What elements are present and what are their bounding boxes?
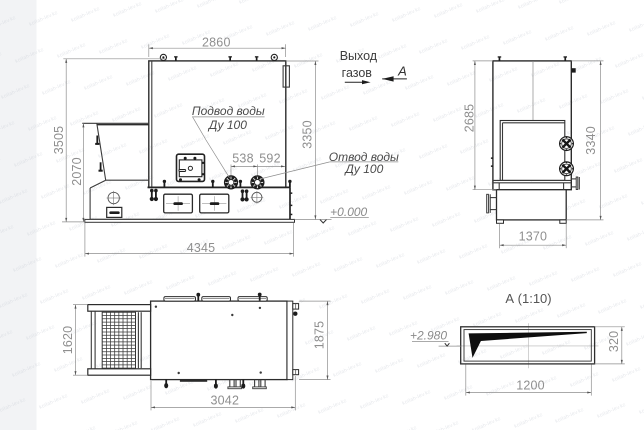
svg-text:Ду 100: Ду 100 — [343, 162, 383, 176]
svg-text:3505: 3505 — [52, 126, 66, 155]
svg-text:320: 320 — [607, 331, 621, 352]
svg-text:газов: газов — [342, 66, 373, 80]
svg-text:2860: 2860 — [202, 35, 231, 49]
svg-text:Ду 100: Ду 100 — [207, 118, 247, 132]
svg-text:538: 538 — [232, 151, 253, 165]
svg-text:3340: 3340 — [584, 126, 598, 155]
svg-text:+0.000: +0.000 — [330, 205, 367, 219]
svg-text:1200: 1200 — [516, 378, 545, 392]
svg-text:1620: 1620 — [61, 326, 75, 355]
svg-text:3350: 3350 — [301, 120, 315, 149]
svg-text:3042: 3042 — [210, 393, 239, 407]
svg-text:А (1:10): А (1:10) — [505, 291, 551, 306]
svg-text:+2.980: +2.980 — [410, 329, 447, 343]
svg-text:4345: 4345 — [187, 241, 216, 255]
svg-text:2685: 2685 — [462, 104, 476, 133]
svg-text:2070: 2070 — [70, 157, 84, 186]
svg-text:Выход: Выход — [340, 49, 378, 63]
svg-text:1875: 1875 — [313, 321, 327, 350]
svg-text:592: 592 — [259, 151, 280, 165]
svg-text:А: А — [397, 64, 407, 79]
svg-text:Подвод воды: Подвод воды — [192, 104, 265, 118]
svg-text:1370: 1370 — [519, 230, 548, 244]
